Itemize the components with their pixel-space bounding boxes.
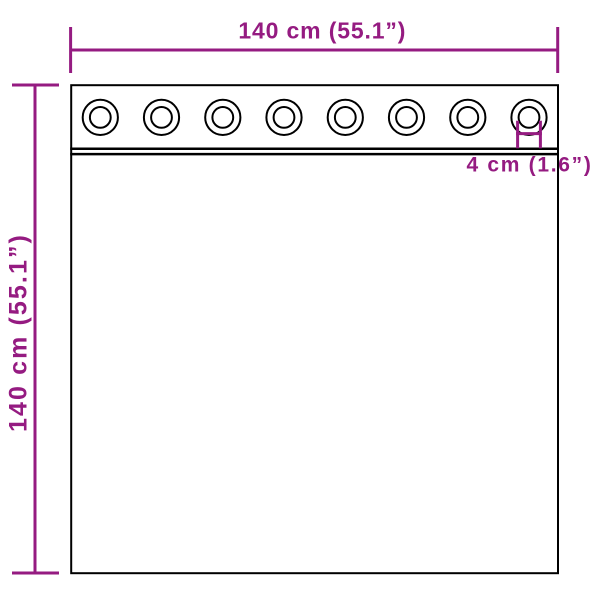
svg-text:4 cm (1.6”): 4 cm (1.6”) <box>466 153 592 176</box>
svg-text:140 cm (55.1”): 140 cm (55.1”) <box>238 18 406 44</box>
svg-text:140 cm (55.1”): 140 cm (55.1”) <box>5 233 33 432</box>
